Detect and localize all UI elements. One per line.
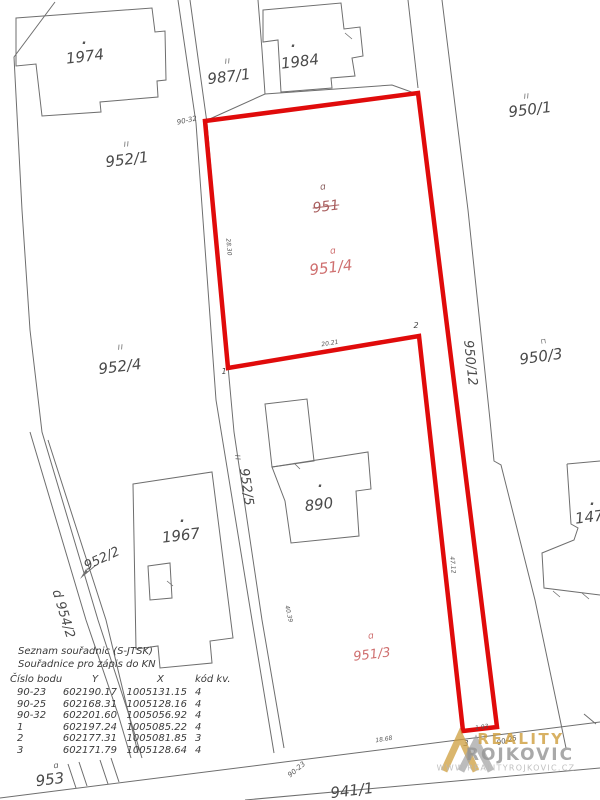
cadastral-map-screenshot: 1974987/11984950/1952/1952/4950/3950/129… bbox=[0, 0, 600, 800]
watermark-logo bbox=[0, 0, 600, 800]
